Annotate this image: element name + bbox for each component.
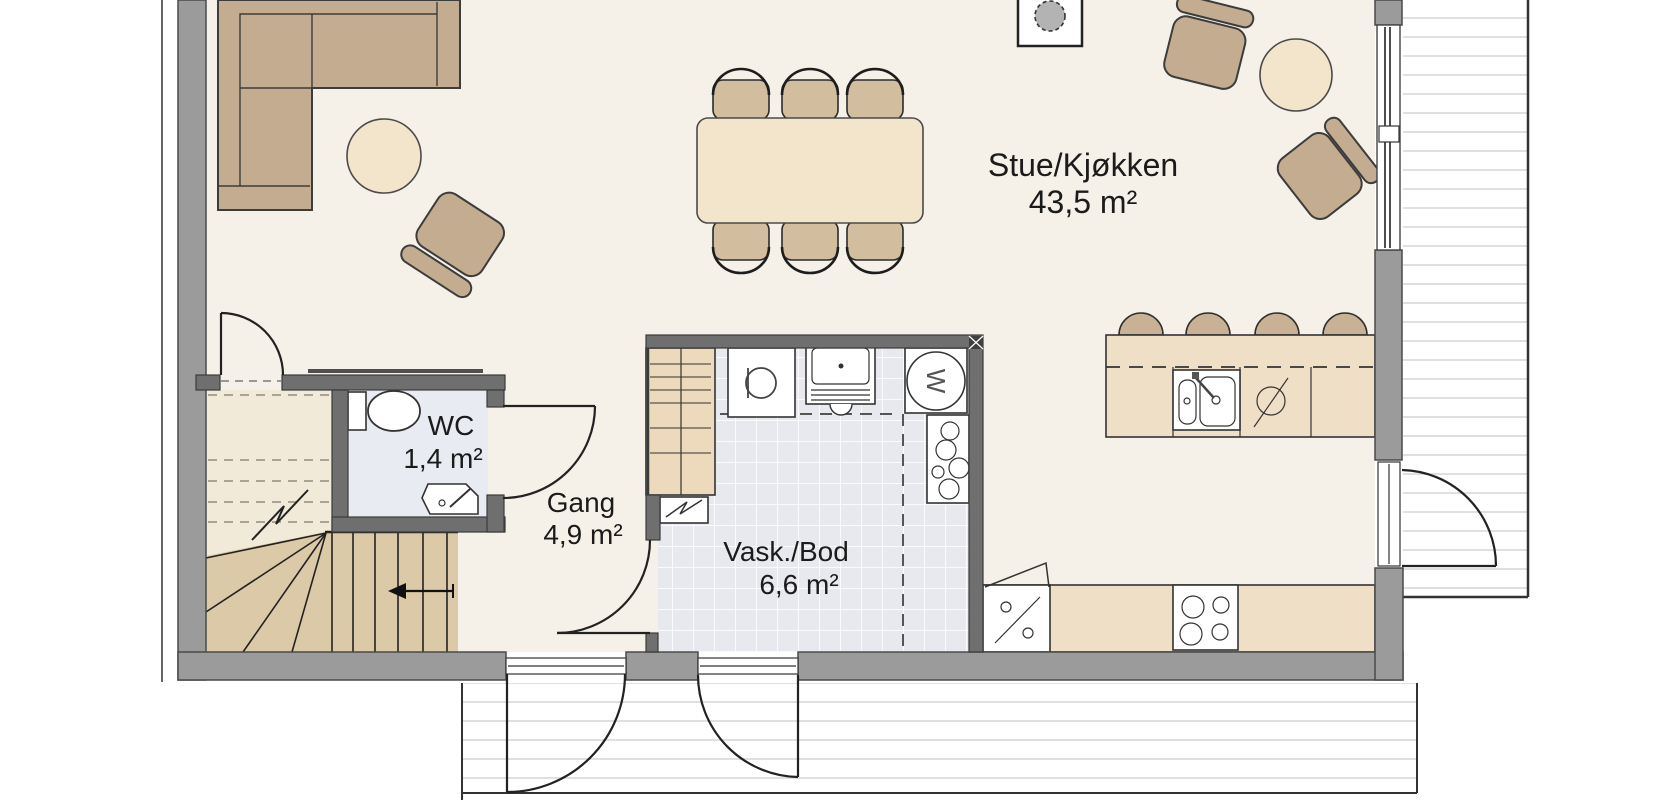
floor-plan: W [0, 0, 1670, 800]
electrical-cabinet [660, 497, 708, 523]
pipe-manifold [927, 415, 969, 503]
washing-machine: W [905, 348, 967, 413]
coffee-table [347, 119, 421, 193]
wall-laundry-west-stub [646, 495, 660, 540]
overhead-beam-line [308, 369, 483, 373]
wall-wc-north [282, 375, 505, 390]
door-threshold-right [698, 658, 798, 674]
dining-table [697, 118, 923, 223]
wall-wc-east-top [487, 390, 504, 407]
room-label-living-kitchen: Stue/Kjøkken [988, 149, 1178, 181]
room-area-laundry: 6,6 m² [759, 571, 838, 599]
floor-plan-drawing: W [0, 0, 1670, 800]
kitchen-sink [1173, 370, 1240, 430]
wall-bottom-pier [626, 652, 698, 680]
room-area-hall: 4,9 m² [543, 521, 622, 549]
wall-wc-west [332, 390, 348, 532]
window-right [1377, 25, 1400, 250]
wall-right-bottom [1375, 568, 1403, 680]
room-label-wc: WC [428, 412, 475, 440]
wall-right-middle [1375, 250, 1402, 460]
cooktop [1173, 585, 1238, 650]
wall-laundry-east [969, 348, 983, 652]
room-label-laundry: Vask./Bod [723, 538, 849, 566]
wall-left [178, 0, 206, 680]
wall-wc-east-bottom [487, 495, 504, 532]
wardrobe [646, 348, 715, 495]
washing-machine-label: W [921, 369, 951, 394]
wall-right-top [1375, 0, 1402, 25]
door-threshold-left [506, 658, 626, 674]
deck-right [1403, 0, 1528, 597]
door-threshold-east [1378, 462, 1400, 566]
wall-wc-south [332, 517, 505, 532]
deck-bottom [462, 683, 1417, 800]
column-marker [969, 336, 983, 349]
room-area-living-kitchen: 43,5 m² [1029, 186, 1137, 218]
wc-sink [422, 484, 478, 514]
water-heater [728, 348, 795, 417]
room-area-wc: 1,4 m² [403, 445, 482, 473]
wall-bottom-a [178, 652, 506, 680]
wall-laundry-north [646, 335, 983, 348]
side-table [1260, 39, 1332, 111]
fireplace [1018, 0, 1082, 46]
wall-bottom-b [798, 652, 1403, 680]
room-label-hall: Gang [547, 489, 616, 517]
wall-laundry-west-jamb [646, 633, 658, 652]
toilet [348, 391, 420, 431]
utility-sink [806, 340, 875, 415]
wall-hall-jamb [196, 375, 220, 390]
